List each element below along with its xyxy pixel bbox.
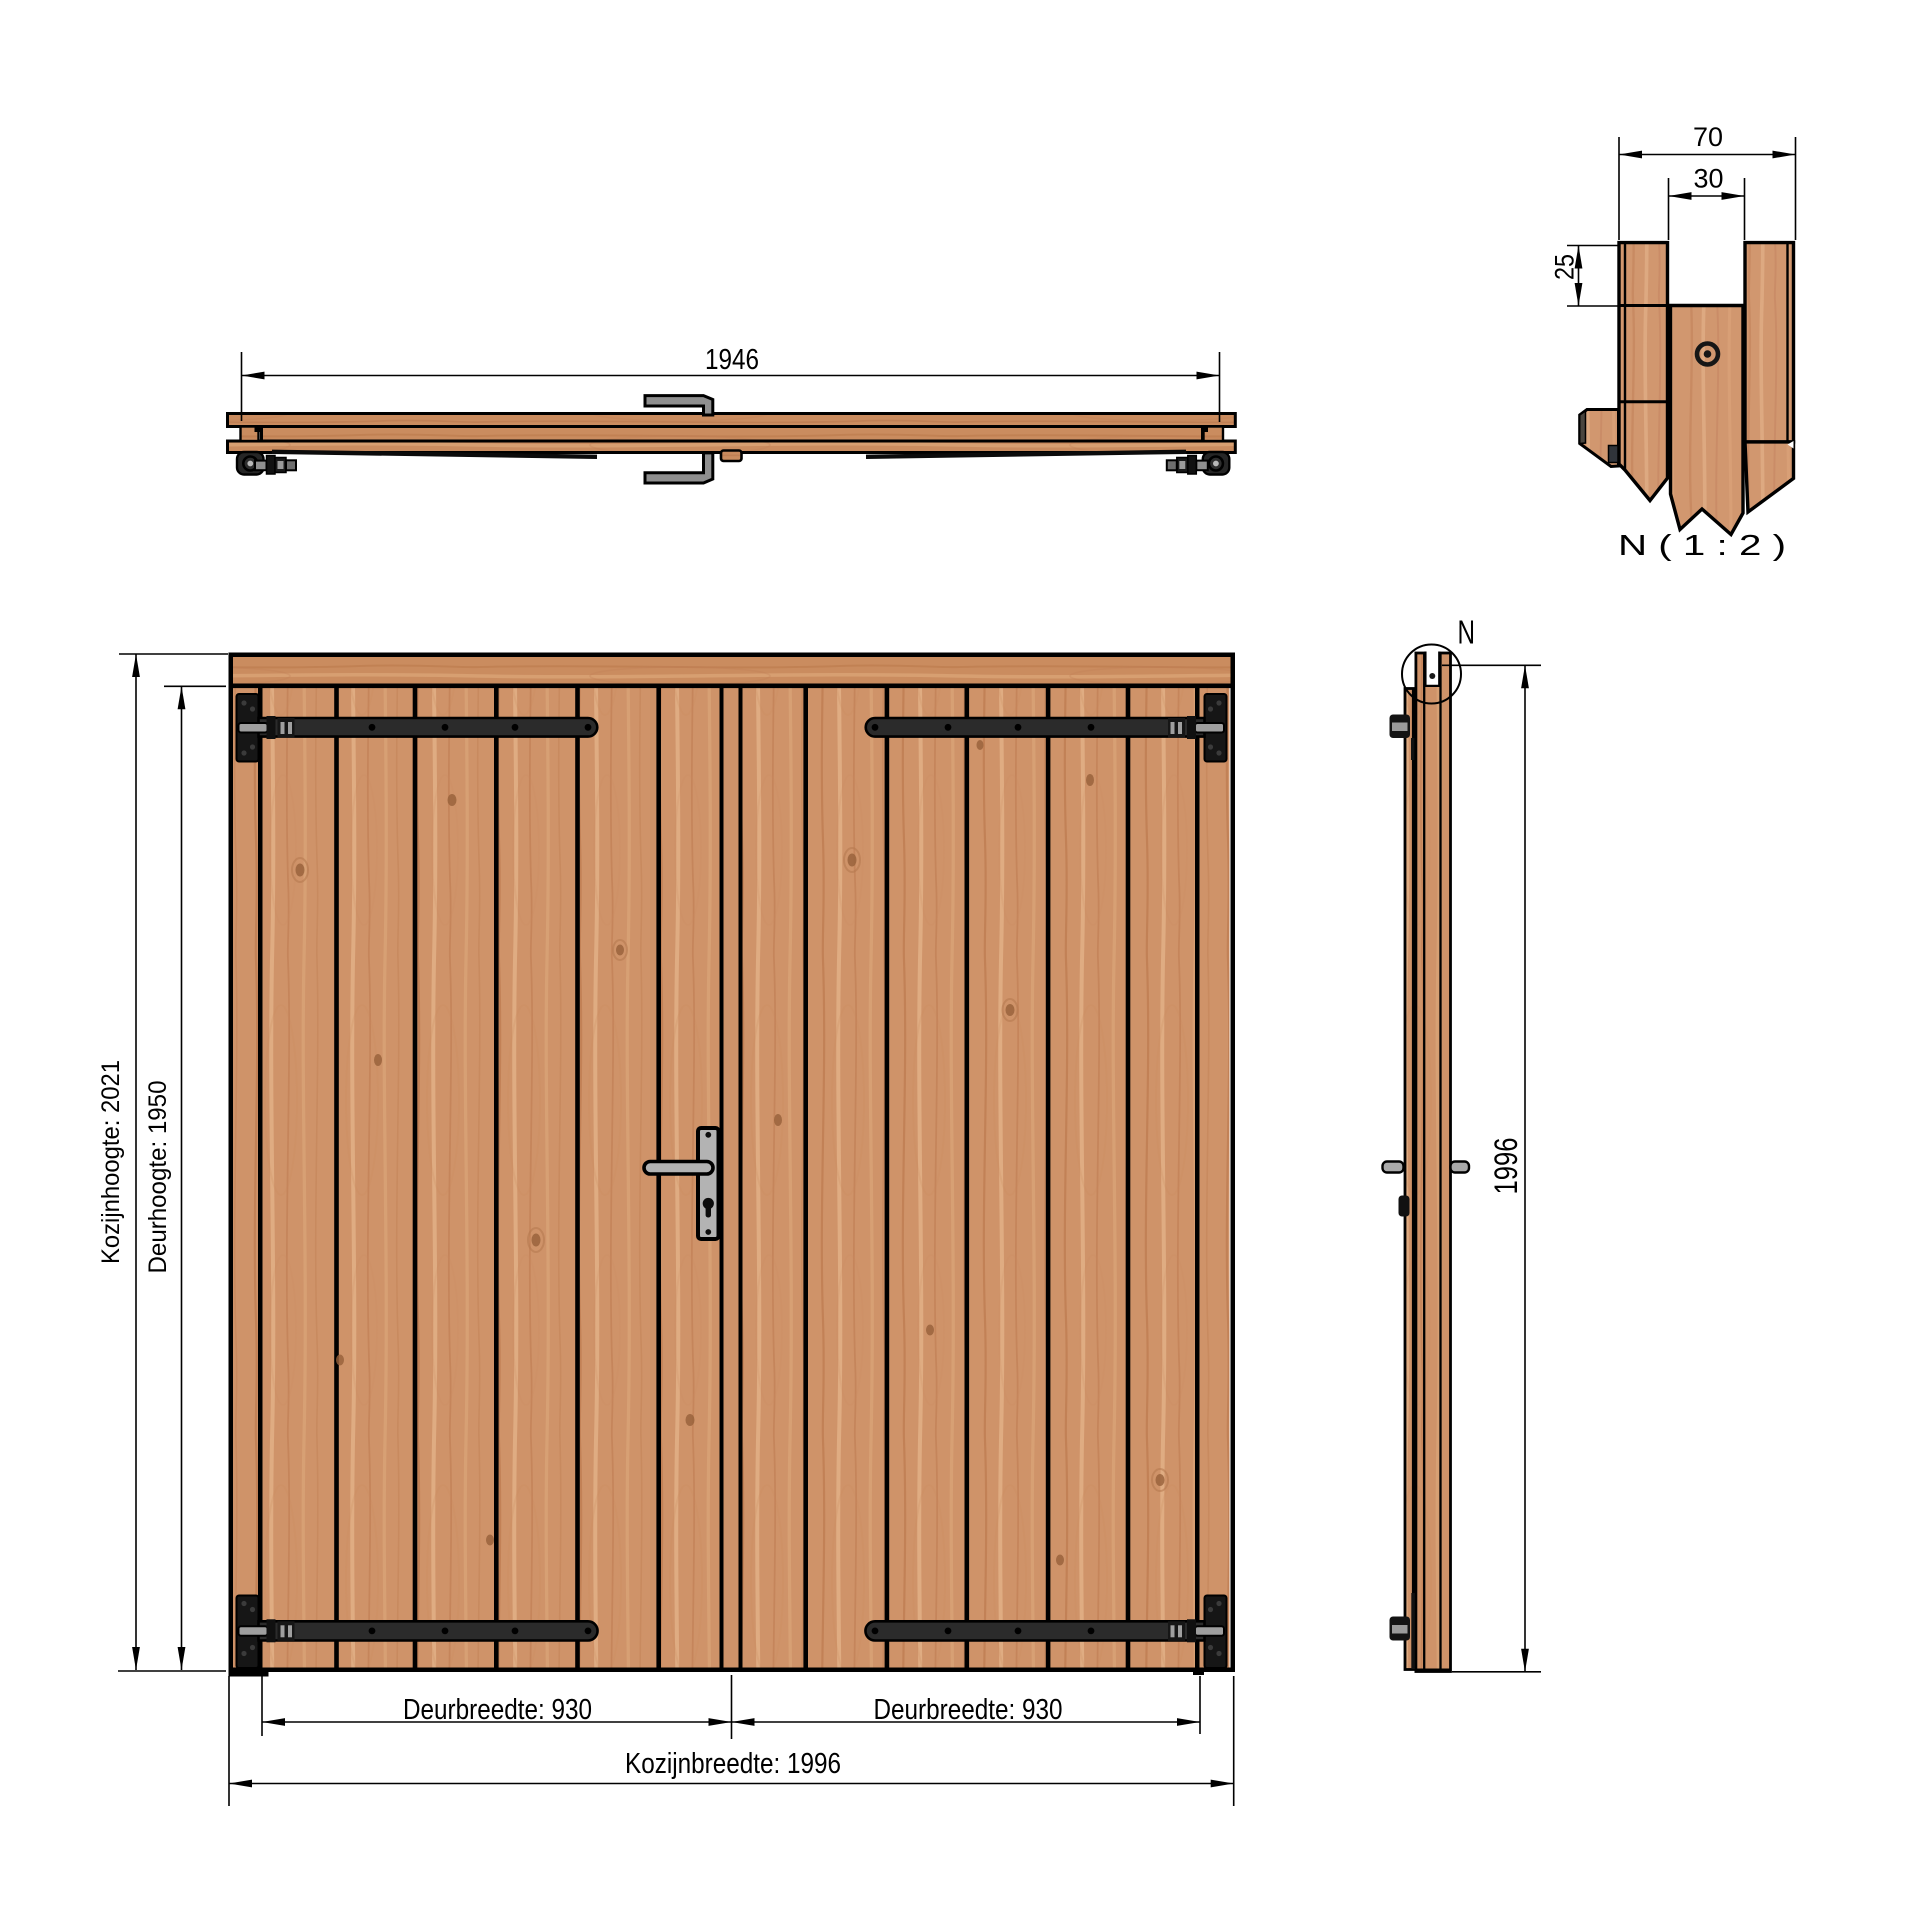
svg-text:Deurhoogte: 1950: Deurhoogte: 1950 (144, 1081, 172, 1274)
svg-text:Deurbreedte: 930: Deurbreedte: 930 (874, 1694, 1063, 1726)
svg-text:70: 70 (1693, 122, 1723, 152)
svg-text:Deurbreedte: 930: Deurbreedte: 930 (403, 1694, 592, 1726)
svg-text:N ( 1 : 2 ): N ( 1 : 2 ) (1618, 530, 1786, 562)
svg-text:25: 25 (1550, 254, 1580, 280)
svg-text:30: 30 (1694, 164, 1724, 194)
svg-text:1996: 1996 (1488, 1138, 1524, 1195)
svg-text:Kozijnbreedte: 1996: Kozijnbreedte: 1996 (625, 1748, 841, 1780)
svg-text:1946: 1946 (705, 344, 759, 376)
svg-text:N: N (1458, 614, 1476, 651)
svg-text:Kozijnhoogte: 2021: Kozijnhoogte: 2021 (97, 1060, 125, 1264)
